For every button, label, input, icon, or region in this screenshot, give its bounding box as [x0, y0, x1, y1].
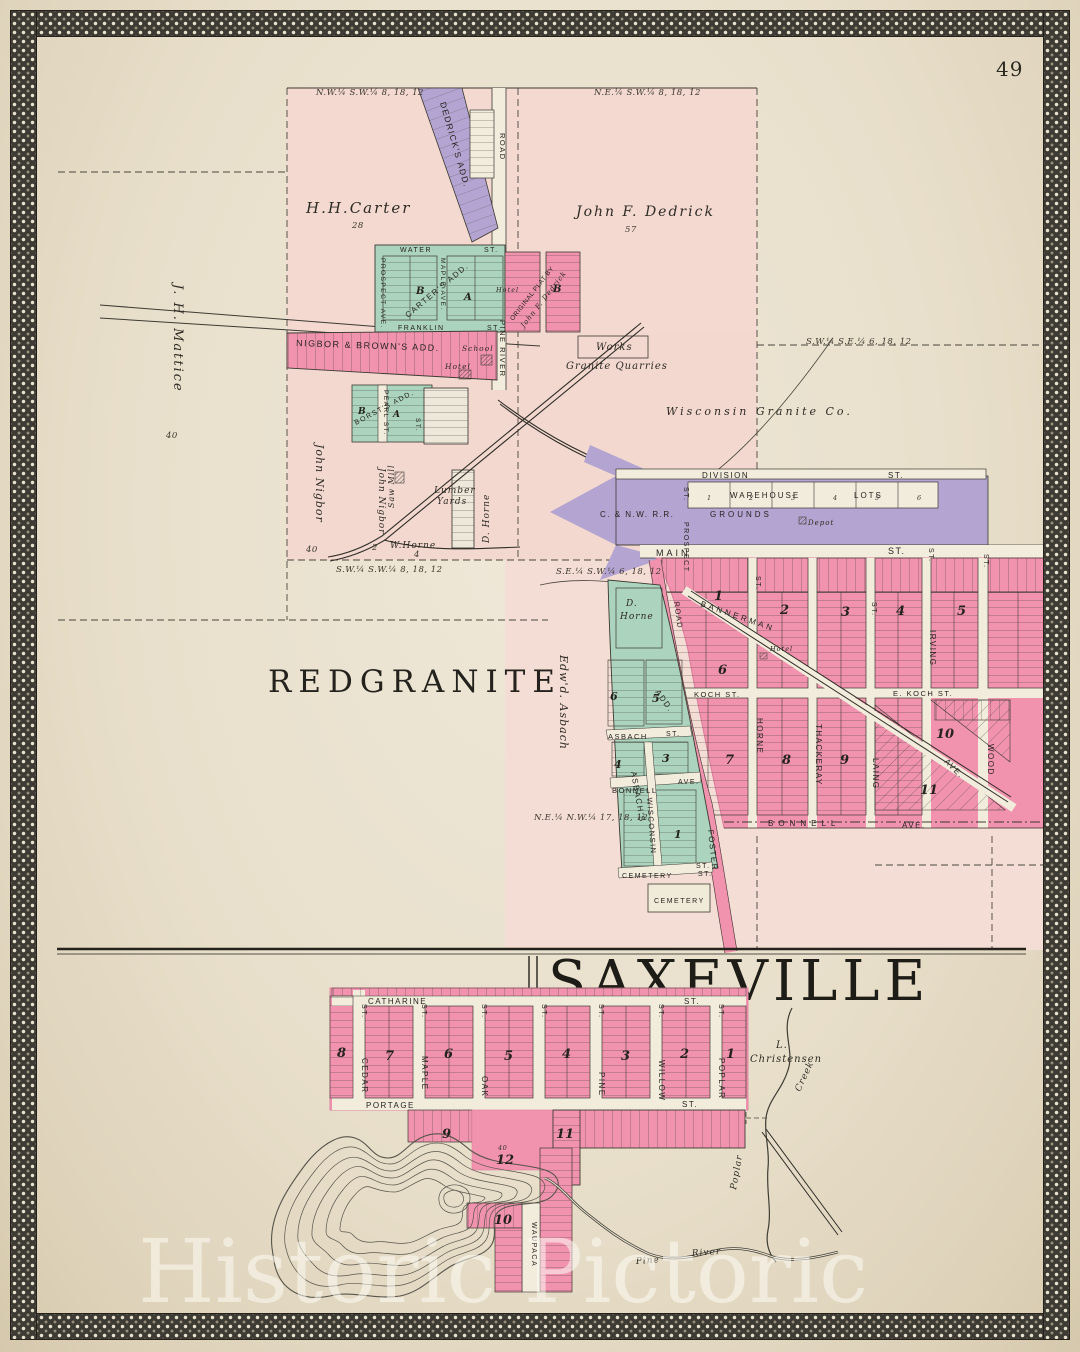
redgranite-title: REDGRANITE	[268, 664, 562, 700]
street-st: ST.	[540, 1004, 547, 1019]
street-st: ST.	[657, 1004, 664, 1019]
street-pearl: PEARL ST.	[382, 390, 389, 436]
lumber-label-1: Lumber	[433, 486, 476, 496]
hotel-label: Hotel	[495, 286, 519, 294]
block-number: 2	[679, 1047, 689, 1062]
owner-whorne-acres: 4	[413, 550, 420, 560]
street-ekoch: E. KOCH ST.	[893, 689, 953, 698]
section-label: S.W.¼ S.E.¼ 6, 18, 12	[806, 336, 912, 347]
warehouse-label: WAREHOUSE	[730, 491, 800, 500]
street-cemetery-st: ST.	[698, 871, 713, 878]
street-prospect: PROSPECT	[682, 522, 689, 573]
street-oak: OAK	[480, 1076, 489, 1097]
border-left	[10, 10, 37, 1340]
border-bottom	[10, 1313, 1070, 1340]
street-bonnell2-ave: AVE.	[678, 779, 699, 786]
hotel-label: Hotel	[769, 645, 793, 653]
street-bonnell: BONNELL	[768, 819, 840, 828]
watermark: Historic Pictoric	[138, 1220, 868, 1323]
street-prospect-st2: ST.	[682, 487, 689, 502]
block-number: 6	[610, 690, 618, 703]
street-koch: KOCH ST.	[694, 690, 741, 699]
street-asbach-st: ST.	[666, 731, 681, 738]
wlot: 1	[707, 494, 712, 502]
street-road: ROAD	[498, 133, 507, 161]
block-number: 7	[385, 1049, 394, 1064]
owner-carter-acres: 28	[351, 221, 364, 231]
street-st: ST.	[717, 1004, 724, 1019]
wlot: 2	[748, 494, 754, 502]
block-number: 3	[841, 605, 850, 620]
block-number: 8	[782, 753, 791, 768]
owner-mattice-acres: 40	[165, 431, 178, 441]
street-laing-st2: ST.	[870, 602, 877, 617]
street-water-st: ST.	[484, 247, 499, 254]
owner-mattice: J. H. Mattice	[170, 281, 185, 393]
block-acres: 40	[497, 1144, 507, 1152]
block-number: 10	[936, 727, 954, 742]
owner-dhorne-n: Horne	[619, 612, 654, 622]
street-pine-river: PINE RIVER	[498, 320, 507, 378]
block-number: 1	[714, 589, 723, 604]
block-number: 4	[896, 604, 905, 619]
street-catharine: CATHARINE	[368, 997, 427, 1006]
street-st: ST.	[597, 1004, 604, 1019]
sawmill-label: Saw Mill	[387, 464, 396, 508]
block-number: 9	[442, 1127, 451, 1142]
block-number: 2	[779, 603, 789, 618]
street-division: DIVISION	[702, 471, 749, 480]
street-horne: HORNE	[755, 718, 764, 754]
street-st: ST.	[360, 1004, 367, 1019]
street-pine: PINE	[597, 1072, 606, 1097]
street-prospect-ave: PROSPECT AVE.	[379, 258, 386, 329]
block-number: 4	[614, 758, 622, 771]
redgranite-map: N.W.¼ S.W.¼ 8, 18, 12 N.E.¼ S.W.¼ 8, 18,…	[58, 87, 1050, 953]
block-letter: B	[357, 407, 366, 417]
street-maple: MAPLE	[420, 1056, 429, 1091]
street-irving-st2: ST.	[927, 548, 934, 563]
block-letter: A	[463, 292, 472, 303]
block-letter: A	[392, 410, 400, 420]
owner-nigbor-acres: 40	[305, 545, 318, 555]
atlas-page: N.W.¼ S.W.¼ 8, 18, 12 N.E.¼ S.W.¼ 8, 18,…	[0, 0, 1080, 1352]
block-number: 5	[504, 1049, 513, 1064]
works-label: Works	[596, 342, 633, 353]
street-main-st: ST.	[888, 546, 906, 556]
owner-dhorne-d: D.	[625, 599, 638, 609]
street-st: ST.	[420, 1004, 427, 1019]
street-poplar: POPLAR	[717, 1058, 726, 1099]
owner-dedrick: John F. Dedrick	[573, 204, 715, 220]
street-irving: IRVING	[928, 630, 937, 666]
block-number: 8	[337, 1046, 346, 1061]
street-asbach: ASBACH	[608, 732, 648, 741]
street-water: WATER	[400, 247, 432, 254]
block-number: 3	[621, 1049, 630, 1064]
school-label: School	[462, 344, 494, 353]
poplar-creek-label: Poplar	[729, 1154, 745, 1192]
street-horne-st2: ST.	[754, 576, 761, 591]
quarries-label: Granite Quarries	[566, 361, 668, 372]
cemetery-label: CEMETERY	[654, 898, 705, 905]
block-number: 3	[662, 752, 670, 765]
block-letter: B	[415, 286, 424, 297]
depot-label: Depot	[807, 519, 834, 527]
block-number: 6	[444, 1047, 453, 1062]
map-canvas: N.W.¼ S.W.¼ 8, 18, 12 N.E.¼ S.W.¼ 8, 18,…	[0, 0, 1080, 1352]
block-number: 1	[674, 828, 682, 841]
street-division-st: ST.	[888, 471, 904, 480]
block-number: 5	[652, 692, 660, 705]
street-wood-st2: ST.	[982, 554, 989, 569]
block-number: 7	[725, 753, 734, 768]
block-number: 11	[556, 1127, 574, 1142]
street-portage: PORTAGE	[366, 1101, 415, 1110]
section-label: N.E.¼ S.W.¼ 8, 18, 12	[593, 87, 701, 98]
block-number: 1	[726, 1047, 735, 1062]
section-label: S.E.¼ S.W.¼ 6, 18, 12	[556, 566, 662, 577]
block-letter: B	[552, 284, 561, 295]
street-willow: WILLOW	[657, 1060, 666, 1101]
section-label: N.W.¼ S.W.¼ 8, 18, 12	[315, 87, 424, 98]
owner-dhorne-west: D. Horne	[482, 494, 492, 544]
owner-nigbor2: John Nigbor	[376, 466, 386, 534]
street-cedar: CEDAR	[360, 1058, 369, 1094]
block-number: 12	[496, 1153, 514, 1168]
street-thackeray: THACKERAY	[814, 724, 823, 786]
block-number: 9	[840, 753, 849, 768]
block-number: 5	[957, 604, 966, 619]
block-number: 6	[718, 663, 727, 678]
owner-dedrick-acres: 57	[625, 225, 637, 235]
cnw-label: C. & N.W. R.R.	[600, 510, 674, 519]
street-wood: WOOD	[986, 744, 995, 776]
owner-nigbor2-acres: 2	[371, 543, 378, 553]
block-number: 11	[920, 783, 938, 798]
street-catharine-st: ST.	[684, 997, 700, 1006]
street-wisconsin-st: ST.	[696, 863, 711, 870]
block-number: 4	[562, 1047, 571, 1062]
owner-christensen-initial: L.	[775, 1040, 788, 1051]
section-label: N.E.¼ N.W.¼ 17, 18, 12	[533, 812, 648, 823]
street-st: ST.	[480, 1004, 487, 1019]
wlot: 4	[832, 494, 838, 502]
wlot: 5	[875, 494, 880, 502]
street-bonnell2: BONNELL	[612, 786, 658, 795]
border-top	[10, 10, 1070, 37]
hotel-label: Hotel	[444, 362, 471, 371]
border-right	[1043, 10, 1070, 1340]
street-franklin: FRANKLIN	[398, 325, 445, 332]
owner-nigbor: John Nigbor	[313, 442, 326, 523]
wisconsin-granite-label: Wisconsin Granite Co.	[666, 405, 853, 418]
street-maple-ave: MAPLE AVE.	[439, 258, 446, 311]
street-bonnell-ave: AVE.	[902, 821, 926, 830]
lumber-label-2: Yards	[437, 497, 467, 507]
street-cemetery: CEMETERY	[622, 873, 673, 880]
street-portage-st: ST.	[682, 1100, 698, 1109]
wlot: 3	[791, 494, 796, 502]
grounds-label: GROUNDS	[710, 510, 772, 519]
street-laing: LAING	[871, 758, 880, 790]
page-number: 49	[996, 57, 1023, 81]
street-st-borst: ST.	[414, 418, 421, 432]
owner-carter: H.H.Carter	[305, 199, 411, 217]
section-label: S.W.¼ S.W.¼ 8, 18, 12	[336, 564, 443, 575]
wlot: 6	[917, 494, 922, 502]
